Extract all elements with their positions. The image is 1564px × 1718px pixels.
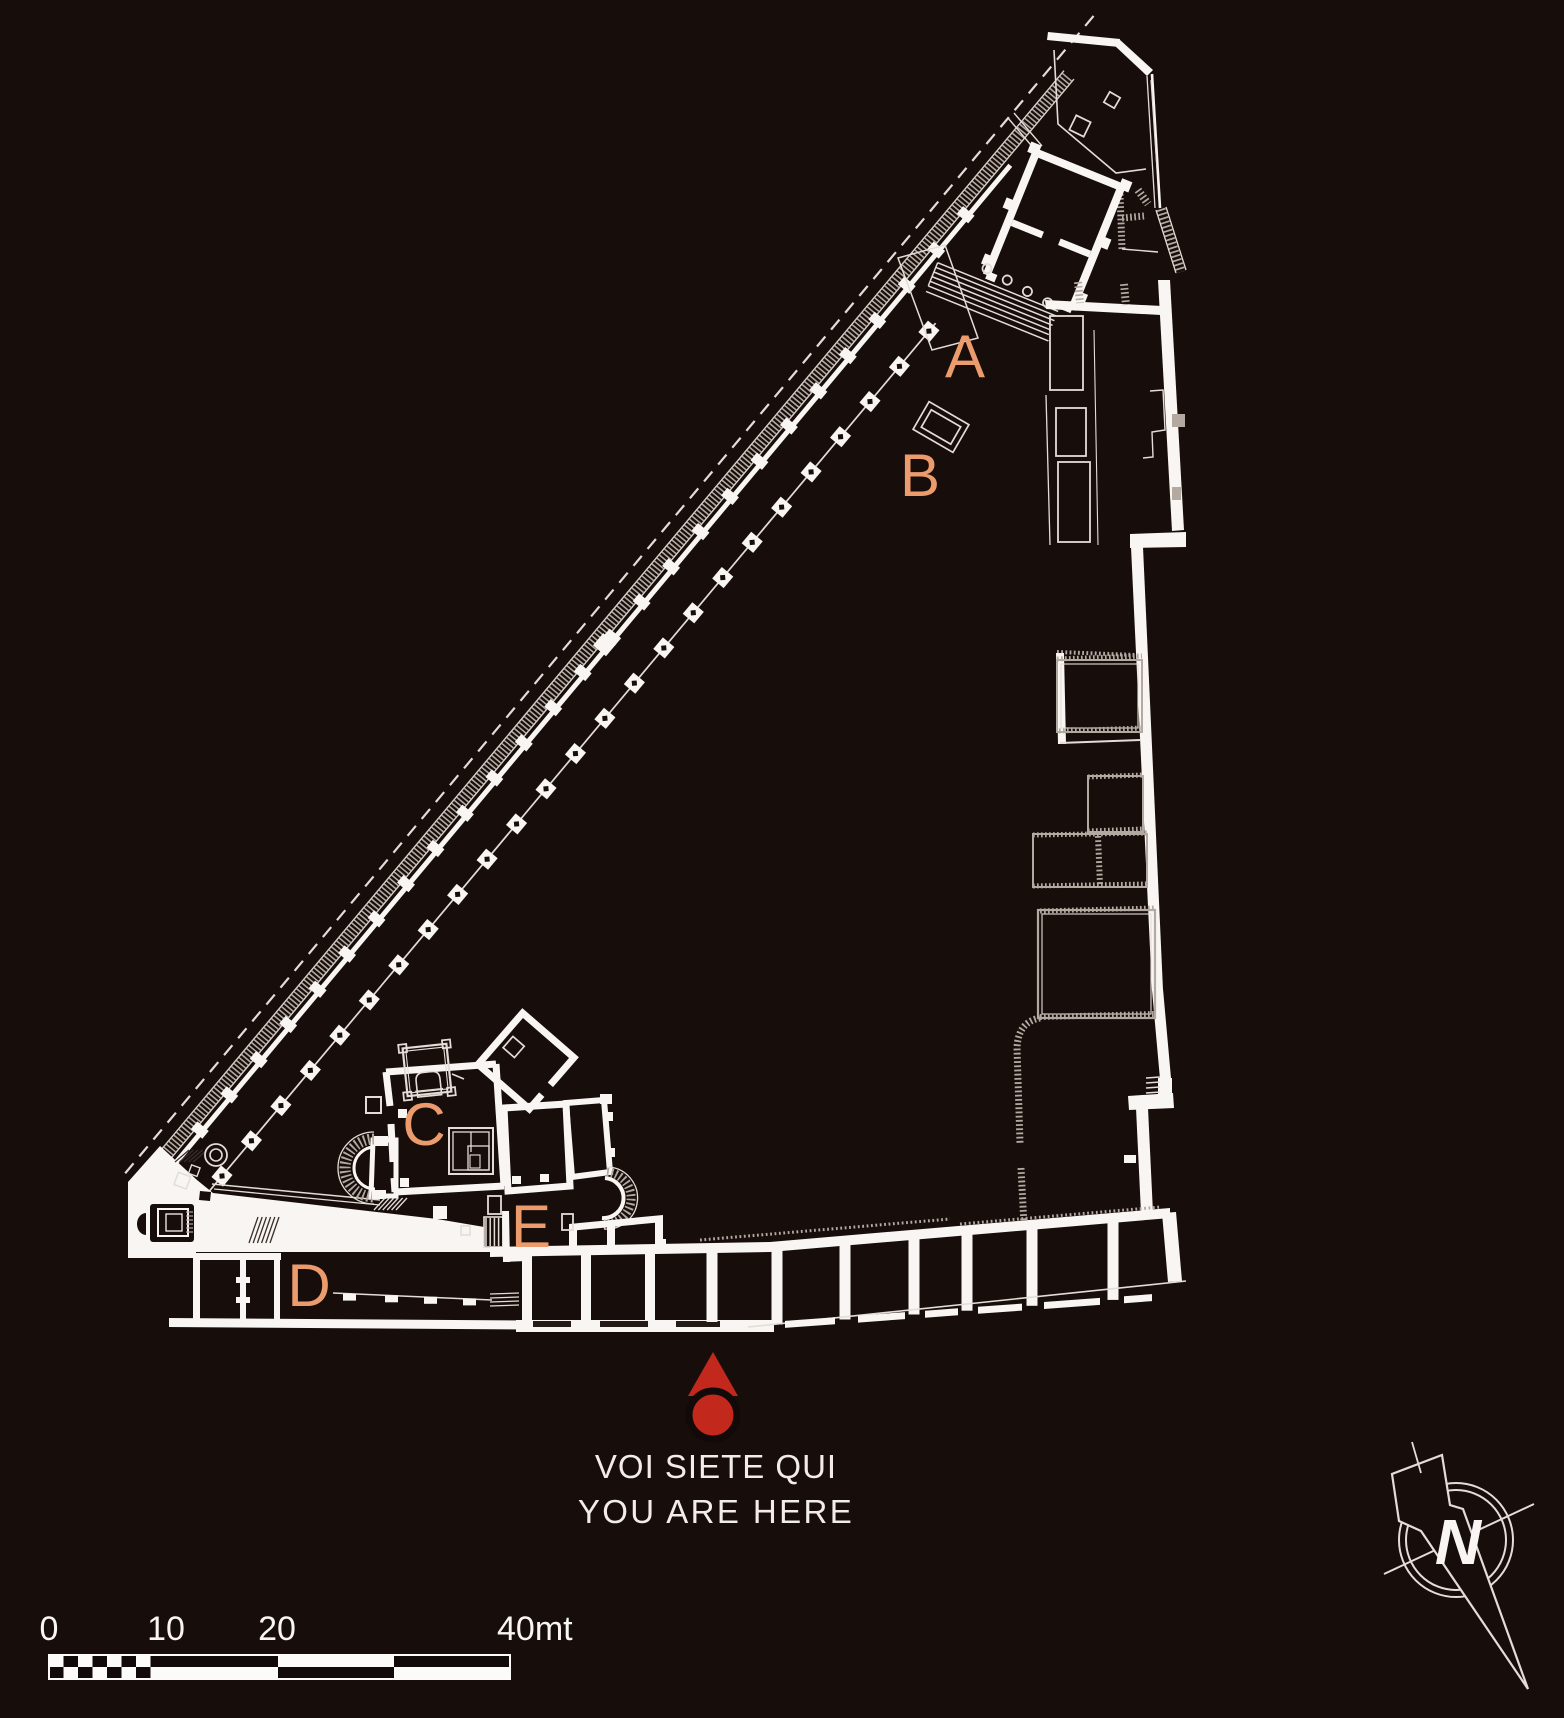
svg-text:N: N	[1435, 1506, 1483, 1578]
svg-text:D: D	[287, 1252, 330, 1319]
svg-text:C: C	[402, 1091, 445, 1158]
svg-text:A: A	[945, 323, 985, 390]
svg-text:VOI SIETE QUI: VOI SIETE QUI	[595, 1448, 837, 1485]
svg-text:40mt: 40mt	[497, 1610, 573, 1648]
svg-text:20: 20	[258, 1610, 296, 1648]
svg-text:0: 0	[40, 1610, 59, 1648]
svg-text:B: B	[900, 442, 940, 509]
svg-text:E: E	[511, 1193, 551, 1260]
svg-text:YOU ARE HERE: YOU ARE HERE	[578, 1493, 854, 1530]
svg-text:10: 10	[147, 1610, 185, 1648]
